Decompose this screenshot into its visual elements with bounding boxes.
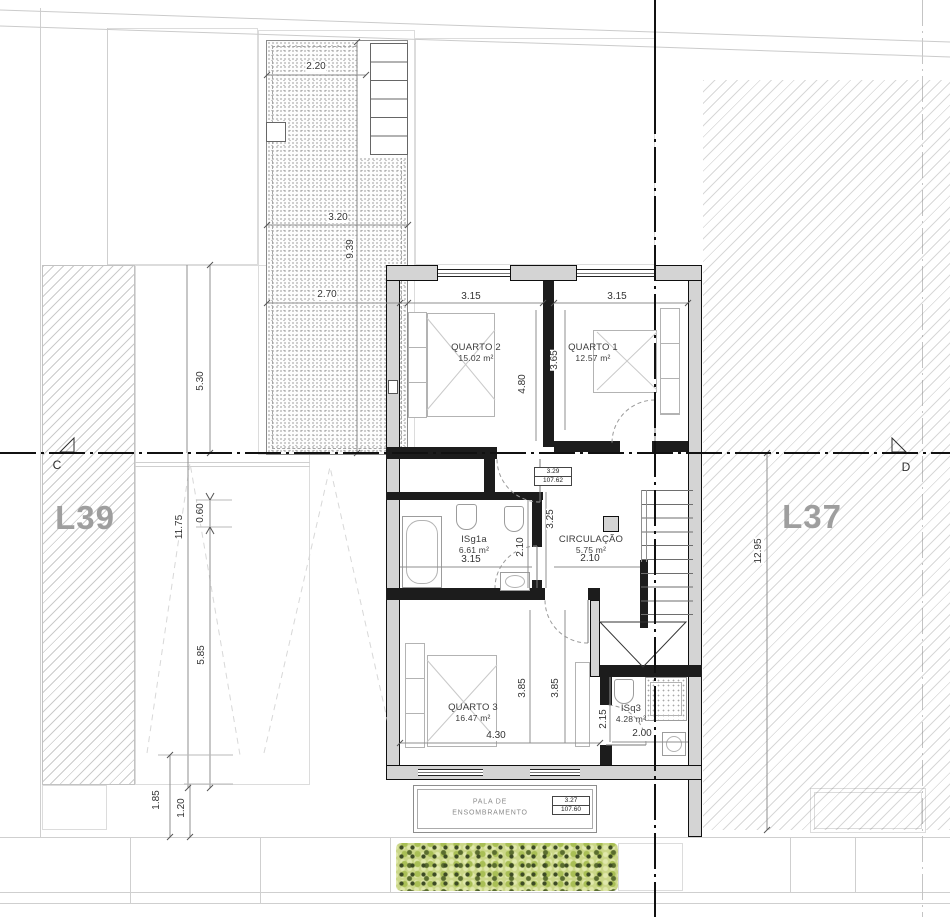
dim-label-q2-width: 3.15 xyxy=(460,292,481,302)
stair-rail xyxy=(646,490,647,562)
patio-slab xyxy=(618,843,683,891)
room-label-isg1a: ISg1a 6.61 m² xyxy=(459,534,489,556)
partition-wall xyxy=(386,492,543,500)
site-line xyxy=(135,466,310,467)
room-label-isq3: ISq3 4.28 m² xyxy=(616,703,646,725)
bathtub-inner xyxy=(406,520,438,584)
dim-label-q2-depth: 4.80 xyxy=(518,373,528,394)
dim-label-isg1a-depth: 2.10 xyxy=(516,536,526,557)
dim-label-left-upper: 5.30 xyxy=(196,370,206,391)
room-label-quarto3: QUARTO 3 16.47 m² xyxy=(448,702,498,724)
exterior-wall-left xyxy=(386,265,400,780)
wardrobe xyxy=(660,308,680,415)
toilet xyxy=(614,679,634,704)
stair-rail xyxy=(641,490,642,562)
wall-niche xyxy=(388,380,398,394)
sidewalk-joint xyxy=(260,837,261,903)
stair-post xyxy=(603,516,619,532)
section-line-cd xyxy=(0,452,950,454)
party-wall-centerline-solid xyxy=(654,0,656,112)
section-letter-c: C xyxy=(53,458,62,472)
window xyxy=(530,769,580,776)
dim-label-left-b2: 1.20 xyxy=(177,797,187,818)
dim-label-left-lower: 5.85 xyxy=(197,644,207,665)
window xyxy=(418,769,483,776)
dim-label-isg1a-width: 3.15 xyxy=(460,555,481,565)
dim-label-isq3-width: 2.00 xyxy=(631,729,652,739)
nightstand-column xyxy=(405,643,425,748)
exterior-wall-pier xyxy=(510,265,577,281)
terrace-post xyxy=(266,122,286,142)
stair-treads xyxy=(641,490,693,628)
level-marker-lower: 3.27 107.60 xyxy=(552,796,590,815)
room-label-quarto1: QUARTO 1 12.57 m² xyxy=(568,342,618,364)
toilet xyxy=(504,506,524,532)
floor-plan: L39 L37 xyxy=(0,0,950,917)
dim-label-q3-depth2: 3.85 xyxy=(551,677,561,698)
dim-label-left-small: 0.60 xyxy=(196,502,206,523)
room-label-quarto2: QUARTO 2 15.02 m² xyxy=(451,342,501,364)
dim-label-q3-depth1: 3.85 xyxy=(518,677,528,698)
sidewalk-line xyxy=(0,892,950,893)
exterior-wall-pier xyxy=(386,265,438,281)
l39-step-outline xyxy=(42,785,107,830)
washbasin-bowl xyxy=(505,575,525,588)
bed xyxy=(427,313,495,417)
canopy-label: PALA DE ENSOMBRAMENTO xyxy=(452,798,528,819)
dim-label-circ-depth: 3.25 xyxy=(546,508,556,529)
lot-label-l39: L39 xyxy=(55,499,115,537)
sidewalk-joint xyxy=(855,837,856,893)
partition-wall xyxy=(600,677,612,705)
exterior-wall-pier xyxy=(655,265,702,281)
dim-label-right-total: 12.95 xyxy=(754,537,764,564)
sidewalk-joint xyxy=(130,837,131,903)
l37-lot-hatch xyxy=(703,80,950,830)
dim-label-terrace-low: 2.70 xyxy=(316,290,337,300)
window xyxy=(438,269,510,277)
sidewalk-line xyxy=(0,837,950,838)
lot-label-l37: L37 xyxy=(782,498,842,536)
partition-wall xyxy=(588,588,600,600)
desk xyxy=(575,662,590,747)
level-marker-upper: 3.29 107.62 xyxy=(534,467,572,486)
exterior-stair xyxy=(370,43,408,155)
dim-label-terrace-len: 9.39 xyxy=(346,238,356,259)
washbasin-bowl xyxy=(666,736,682,752)
site-line xyxy=(107,28,108,265)
sidewalk-joint xyxy=(790,837,791,893)
party-wall-centerline xyxy=(654,0,656,917)
dim-label-left-b1: 1.85 xyxy=(152,789,162,810)
partition-wall xyxy=(590,600,600,677)
stair-direction-triangle xyxy=(600,622,686,667)
partition-wall xyxy=(600,665,702,677)
partition-wall xyxy=(554,441,620,452)
site-line xyxy=(40,8,41,837)
hedge xyxy=(396,843,618,891)
dim-label-q3-width: 4.30 xyxy=(485,731,506,741)
partition-wall xyxy=(652,441,688,452)
dim-label-terrace-mid: 3.20 xyxy=(327,213,348,223)
dim-label-q1-width: 3.15 xyxy=(606,292,627,302)
sidewalk-joint xyxy=(390,837,391,893)
dim-label-isq3-depth: 2.15 xyxy=(599,708,609,729)
dim-label-terrace-top: 2.20 xyxy=(305,62,326,72)
dim-label-left-total: 11.75 xyxy=(175,514,185,540)
sidewalk-line xyxy=(0,903,950,904)
site-line xyxy=(135,462,310,463)
partition-wall xyxy=(532,500,542,547)
nightstand-column xyxy=(408,312,427,418)
dim-label-q1-depth: 3.65 xyxy=(550,349,560,370)
window xyxy=(577,269,655,277)
bidet xyxy=(456,504,477,530)
garden-outline xyxy=(107,28,258,265)
section-letter-d: D xyxy=(902,460,911,474)
dim-label-circ-width: 2.10 xyxy=(579,554,600,564)
garden-outline xyxy=(415,38,655,265)
partition-wall xyxy=(600,745,612,765)
